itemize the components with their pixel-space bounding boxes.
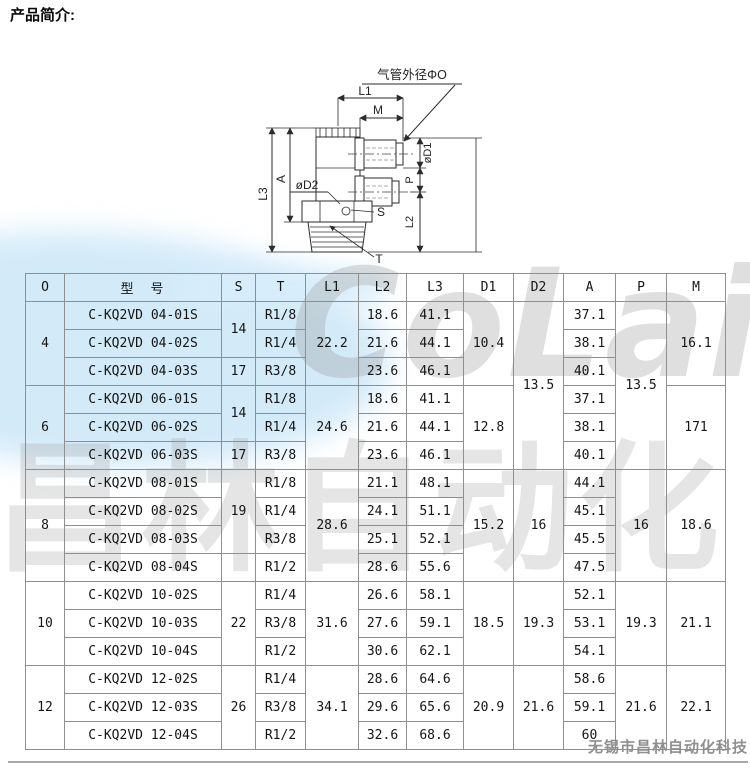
cell-l3: 59.1 bbox=[407, 610, 464, 638]
cell-t: R1/4 bbox=[256, 666, 306, 694]
fitting-hex-nut bbox=[302, 201, 372, 222]
cell-model: C-KQ2VD 06-01S bbox=[65, 386, 222, 414]
cell-p: 19.3 bbox=[616, 582, 667, 666]
cell-l2: 23.6 bbox=[359, 358, 407, 386]
fitting-diagram: 气管外径ΦO bbox=[250, 64, 550, 269]
cell-m: 171 bbox=[667, 386, 726, 470]
cell-a: 38.1 bbox=[564, 330, 616, 358]
cell-l3: 46.1 bbox=[407, 442, 464, 470]
cell-model: C-KQ2VD 10-04S bbox=[65, 638, 222, 666]
cell-model: C-KQ2VD 06-03S bbox=[65, 442, 222, 470]
cell-t: R3/8 bbox=[256, 526, 306, 554]
table-row: 8 C-KQ2VD 08-01S 19 R1/8 28.6 21.1 48.1 … bbox=[26, 470, 726, 498]
cell-l2: 24.1 bbox=[359, 498, 407, 526]
cell-t: R3/8 bbox=[256, 442, 306, 470]
cell-a: 38.1 bbox=[564, 414, 616, 442]
header-p: P bbox=[616, 274, 667, 302]
cell-p: 16 bbox=[616, 470, 667, 582]
header-l2: L2 bbox=[359, 274, 407, 302]
cell-l3: 62.1 bbox=[407, 638, 464, 666]
cell-l3: 64.6 bbox=[407, 666, 464, 694]
dim-label-p: P bbox=[404, 176, 416, 183]
cell-a: 44.1 bbox=[564, 470, 616, 498]
table-header-row: O 型 号 S T L1 L2 L3 D1 D2 A P M bbox=[26, 274, 726, 302]
dim-label-m: M bbox=[373, 103, 383, 117]
cell-s: 14 bbox=[222, 302, 256, 358]
dim-label-d2: øD2 bbox=[296, 178, 319, 192]
cell-m: 18.6 bbox=[667, 470, 726, 582]
cell-d2: 16 bbox=[514, 470, 564, 582]
cell-d1: 18.5 bbox=[464, 582, 514, 666]
header-o: O bbox=[26, 274, 65, 302]
cell-l3: 41.1 bbox=[407, 386, 464, 414]
cell-l3: 68.6 bbox=[407, 722, 464, 750]
table-row: 4 C-KQ2VD 04-01S 14 R1/8 22.2 18.6 41.1 … bbox=[26, 302, 726, 330]
cell-a: 58.6 bbox=[564, 666, 616, 694]
cell-l2: 27.6 bbox=[359, 610, 407, 638]
cell-l3: 44.1 bbox=[407, 414, 464, 442]
cell-t: R1/4 bbox=[256, 498, 306, 526]
cell-s: 19 bbox=[222, 470, 256, 554]
cell-s: 14 bbox=[222, 386, 256, 442]
dim-label-l1: L1 bbox=[358, 84, 372, 98]
header-m: M bbox=[667, 274, 726, 302]
header-d2: D2 bbox=[514, 274, 564, 302]
cell-o: 8 bbox=[26, 470, 65, 582]
cell-l2: 21.6 bbox=[359, 414, 407, 442]
cell-model: C-KQ2VD 04-01S bbox=[65, 302, 222, 330]
header-s: S bbox=[222, 274, 256, 302]
cell-l3: 41.1 bbox=[407, 302, 464, 330]
cell-d1: 12.8 bbox=[464, 386, 514, 470]
page-title: 产品简介: bbox=[10, 4, 75, 25]
cell-l3: 55.6 bbox=[407, 554, 464, 582]
table-row: 12 C-KQ2VD 12-02S 26 R1/4 34.1 28.6 64.6… bbox=[26, 666, 726, 694]
cell-d1: 10.4 bbox=[464, 302, 514, 386]
cell-l3: 46.1 bbox=[407, 358, 464, 386]
cell-t: R1/4 bbox=[256, 330, 306, 358]
spec-table: O 型 号 S T L1 L2 L3 D1 D2 A P M 4 C-KQ2VD… bbox=[25, 273, 726, 750]
cell-l2: 21.1 bbox=[359, 470, 407, 498]
fitting-port-upper bbox=[348, 138, 414, 170]
product-spec-page: CoLair 昌林自动化 产品简介: 气管外径ΦO bbox=[0, 0, 750, 768]
cell-l2: 26.6 bbox=[359, 582, 407, 610]
cell-model: C-KQ2VD 08-04S bbox=[65, 554, 222, 582]
cell-l1: 34.1 bbox=[306, 666, 359, 750]
cell-t: R1/2 bbox=[256, 554, 306, 582]
cell-t: R1/8 bbox=[256, 386, 306, 414]
cell-model: C-KQ2VD 08-03S bbox=[65, 526, 222, 554]
cell-model: C-KQ2VD 06-02S bbox=[65, 414, 222, 442]
cell-d1: 15.2 bbox=[464, 470, 514, 582]
cell-a: 45.5 bbox=[564, 526, 616, 554]
cell-t: R1/4 bbox=[256, 414, 306, 442]
dim-label-a: A bbox=[274, 175, 288, 183]
cell-a: 45.1 bbox=[564, 498, 616, 526]
dim-label-tube-od: 气管外径ΦO bbox=[377, 67, 447, 82]
header-d1: D1 bbox=[464, 274, 514, 302]
dim-label-d1: øD1 bbox=[422, 143, 434, 164]
cell-l2: 30.6 bbox=[359, 638, 407, 666]
cell-m: 16.1 bbox=[667, 302, 726, 386]
cell-a: 40.1 bbox=[564, 442, 616, 470]
cell-t: R1/8 bbox=[256, 470, 306, 498]
cell-l2: 18.6 bbox=[359, 386, 407, 414]
cell-o: 6 bbox=[26, 386, 65, 470]
cell-l3: 65.6 bbox=[407, 694, 464, 722]
cell-model: C-KQ2VD 08-02S bbox=[65, 498, 222, 526]
cell-t: R1/4 bbox=[256, 582, 306, 610]
cell-l1: 22.2 bbox=[306, 302, 359, 386]
dim-label-l2: L2 bbox=[404, 216, 416, 228]
cell-model: C-KQ2VD 12-02S bbox=[65, 666, 222, 694]
cell-l2: 32.6 bbox=[359, 722, 407, 750]
cell-s: 17 bbox=[222, 358, 256, 386]
cell-l2: 21.6 bbox=[359, 330, 407, 358]
table-row: 10 C-KQ2VD 10-02S 22 R1/4 31.6 26.6 58.1… bbox=[26, 582, 726, 610]
cell-o: 10 bbox=[26, 582, 65, 666]
cell-l3: 52.1 bbox=[407, 526, 464, 554]
cell-t: R3/8 bbox=[256, 358, 306, 386]
header-t: T bbox=[256, 274, 306, 302]
cell-t: R3/8 bbox=[256, 610, 306, 638]
cell-l2: 25.1 bbox=[359, 526, 407, 554]
cell-s: 17 bbox=[222, 442, 256, 470]
cell-s: 26 bbox=[222, 666, 256, 750]
cell-t: R1/2 bbox=[256, 638, 306, 666]
cell-l1: 24.6 bbox=[306, 386, 359, 470]
dim-label-t: T bbox=[375, 252, 383, 266]
cell-a: 52.1 bbox=[564, 582, 616, 610]
cell-o: 4 bbox=[26, 302, 65, 386]
cell-model: C-KQ2VD 08-01S bbox=[65, 470, 222, 498]
cell-d2: 13.5 bbox=[514, 302, 564, 470]
cell-model: C-KQ2VD 12-03S bbox=[65, 694, 222, 722]
fitting-body bbox=[316, 128, 360, 201]
cell-l2: 23.6 bbox=[359, 442, 407, 470]
cell-a: 59.1 bbox=[564, 694, 616, 722]
dim-label-l3: L3 bbox=[256, 187, 270, 201]
fitting-thread bbox=[308, 222, 366, 252]
cell-t: R3/8 bbox=[256, 694, 306, 722]
cell-s: 22 bbox=[222, 582, 256, 666]
header-l1: L1 bbox=[306, 274, 359, 302]
cell-model: C-KQ2VD 10-03S bbox=[65, 610, 222, 638]
company-watermark: 无锡市昌林自动化科技 bbox=[588, 736, 748, 757]
cell-a: 47.5 bbox=[564, 554, 616, 582]
cell-d2: 21.6 bbox=[514, 666, 564, 750]
cell-model: C-KQ2VD 04-02S bbox=[65, 330, 222, 358]
cell-t: R1/2 bbox=[256, 722, 306, 750]
dim-label-s: S bbox=[377, 205, 385, 219]
cell-t: R1/8 bbox=[256, 302, 306, 330]
cell-model: C-KQ2VD 12-04S bbox=[65, 722, 222, 750]
header-model: 型 号 bbox=[65, 274, 222, 302]
cell-l3: 44.1 bbox=[407, 330, 464, 358]
footer-divider bbox=[8, 761, 748, 763]
header-a: A bbox=[564, 274, 616, 302]
cell-m: 21.1 bbox=[667, 582, 726, 666]
dimension-lines: L1 M L3 A øD2 S T bbox=[256, 84, 482, 266]
cell-model: C-KQ2VD 04-03S bbox=[65, 358, 222, 386]
cell-a: 40.1 bbox=[564, 358, 616, 386]
cell-a: 54.1 bbox=[564, 638, 616, 666]
cell-d2: 19.3 bbox=[514, 582, 564, 666]
cell-a: 53.1 bbox=[564, 610, 616, 638]
cell-l1: 28.6 bbox=[306, 470, 359, 582]
cell-l3: 51.1 bbox=[407, 498, 464, 526]
cell-l2: 28.6 bbox=[359, 554, 407, 582]
cell-l1: 31.6 bbox=[306, 582, 359, 666]
cell-p: 13.5 bbox=[616, 302, 667, 470]
cell-l3: 48.1 bbox=[407, 470, 464, 498]
cell-l3: 58.1 bbox=[407, 582, 464, 610]
cell-l2: 28.6 bbox=[359, 666, 407, 694]
cell-a: 37.1 bbox=[564, 302, 616, 330]
header-l3: L3 bbox=[407, 274, 464, 302]
cell-l2: 18.6 bbox=[359, 302, 407, 330]
cell-s bbox=[222, 554, 256, 582]
cell-d1: 20.9 bbox=[464, 666, 514, 750]
cell-a: 37.1 bbox=[564, 386, 616, 414]
cell-o: 12 bbox=[26, 666, 65, 750]
cell-model: C-KQ2VD 10-02S bbox=[65, 582, 222, 610]
cell-l2: 29.6 bbox=[359, 694, 407, 722]
